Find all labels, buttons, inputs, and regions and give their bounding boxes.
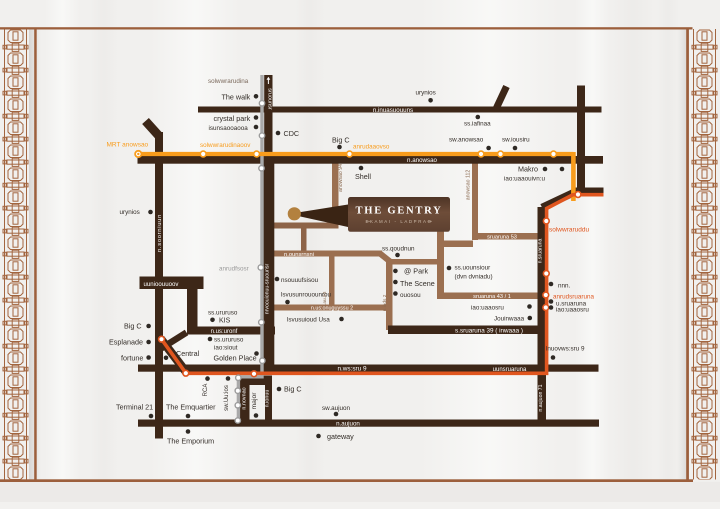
svg-text:Big C: Big C (332, 136, 350, 145)
svg-text:The Emporium: The Emporium (167, 437, 214, 446)
svg-text:The walk: The walk (222, 93, 251, 102)
svg-text:sw.iousiru: sw.iousiru (502, 137, 530, 144)
svg-text:lsvusuioud Usa: lsvusuioud Usa (287, 317, 330, 324)
svg-text:Esplanade: Esplanade (109, 338, 143, 347)
svg-text:iao:uaaosru: iao:uaaosru (556, 307, 589, 314)
svg-text:Golden Place: Golden Place (214, 354, 257, 363)
svg-text:uunsruaruna: uunsruaruna (493, 367, 527, 373)
svg-text:n.aujuon 71: n.aujuon 71 (538, 384, 544, 411)
svg-text:nrvoouionuu-sruounsr: nrvoouionuu-sruounsr (265, 263, 271, 314)
svg-text:ss.iafinaa: ss.iafinaa (464, 121, 491, 128)
svg-text:n.ounsrnsni: n.ounsrnsni (284, 252, 314, 258)
svg-text:iao:uaaosru: iao:uaaosru (471, 305, 504, 312)
svg-text:n.ws:sru 9: n.ws:sru 9 (337, 365, 367, 372)
svg-text:fortune: fortune (121, 354, 143, 363)
svg-text:n.inuasuouuns: n.inuasuouuns (373, 107, 413, 114)
svg-text:@ Park: @ Park (404, 267, 428, 276)
svg-text:sruaruna 53: sruaruna 53 (487, 235, 517, 241)
svg-text:anowsao 112: anowsao 112 (466, 170, 472, 201)
svg-text:n.anowsao: n.anowsao (407, 157, 437, 164)
svg-text:CDC: CDC (284, 129, 300, 138)
svg-text:RCA: RCA (203, 384, 209, 397)
svg-text:KIS: KIS (219, 318, 231, 325)
svg-text:nsouuufsisou: nsouuufsisou (281, 277, 319, 284)
svg-text:anrudsruaruna: anrudsruaruna (553, 294, 594, 301)
svg-text:urynios: urynios (416, 89, 436, 96)
svg-text:THE GENTRY: THE GENTRY (356, 206, 443, 217)
svg-text:n.ionuu: n.ionuu (264, 390, 270, 408)
svg-text:solwwrarudinaoov: solwwrarudinaoov (200, 142, 251, 149)
svg-text:iao:siout: iao:siout (214, 345, 238, 352)
svg-text:n.novnao: n.novnao (241, 387, 247, 409)
svg-text:ss.uounsiour: ss.uounsiour (455, 265, 491, 272)
svg-text:sw.Uu:ios: sw.Uu:ios (224, 385, 230, 411)
svg-text:sruaruna 43 / 1: sruaruna 43 / 1 (473, 294, 511, 300)
svg-text:ss.qoudnun: ss.qoudnun (382, 246, 415, 253)
svg-text:Big C: Big C (284, 385, 302, 394)
svg-text:EKAMAI - LADPRAO: EKAMAI - LADPRAO (365, 219, 432, 224)
svg-text:nnn.: nnn. (558, 283, 571, 290)
svg-text:ss.ururuso: ss.ururuso (208, 310, 238, 317)
svg-text:anrudfsosr: anrudfsosr (219, 266, 249, 273)
svg-text:n.sruaruna: n.sruaruna (538, 238, 544, 263)
svg-text:(dvn dvniadu): (dvn dvniadu) (455, 274, 493, 281)
svg-text:lnuovws:sru 9: lnuovws:sru 9 (546, 346, 585, 353)
svg-text:iao:uaaouivn:u: iao:uaaouivn:u (504, 176, 545, 183)
svg-text:n.us:onuguyssu 2: n.us:onuguyssu 2 (311, 306, 353, 312)
svg-text:MRT anowsao: MRT anowsao (107, 142, 149, 149)
svg-text:s.sruaruna 39 ( inwaaa ): s.sruaruna 39 ( inwaaa ) (455, 327, 523, 334)
svg-text:Central: Central (176, 349, 200, 358)
svg-text:uunioouuoov: uunioouuoov (144, 281, 180, 288)
svg-text:n.iads 2: n.iads 2 (382, 294, 388, 311)
svg-text:anrudaaovso: anrudaaovso (353, 144, 390, 151)
svg-text:isunsaooaooa: isunsaooaooa (209, 125, 249, 132)
svg-text:major: major (251, 392, 258, 410)
svg-text:n.aujuon: n.aujuon (336, 420, 360, 427)
svg-text:urynios: urynios (120, 209, 140, 216)
svg-text:sw.anowsao: sw.anowsao (449, 137, 484, 144)
svg-text:Terminal 21: Terminal 21 (116, 403, 153, 412)
svg-text:n.us:uronf: n.us:uronf (211, 329, 238, 335)
svg-text:solwwrarudina: solwwrarudina (208, 78, 249, 85)
svg-text:sruounsr: sruounsr (267, 88, 273, 110)
svg-text:The Scene: The Scene (400, 279, 435, 288)
svg-text:Makro: Makro (518, 165, 538, 174)
svg-text:ouosou: ouosou (400, 292, 421, 299)
svg-text:solwwraruddu: solwwraruddu (549, 227, 589, 234)
svg-text:ss.ururuso: ss.ururuso (214, 337, 244, 344)
svg-text:The Emquartier: The Emquartier (166, 403, 216, 412)
svg-text:anowsao 94: anowsao 94 (338, 164, 344, 192)
svg-text:sw.aujuon: sw.aujuon (322, 405, 351, 412)
svg-text:n.soorniuun: n.soorniuun (157, 214, 163, 252)
svg-text:crystal park: crystal park (214, 114, 251, 123)
svg-text:gateway: gateway (327, 432, 354, 441)
svg-text:Jouinwaaa: Jouinwaaa (494, 316, 525, 323)
svg-text:Shell: Shell (355, 172, 371, 181)
svg-text:Big C: Big C (124, 322, 142, 331)
